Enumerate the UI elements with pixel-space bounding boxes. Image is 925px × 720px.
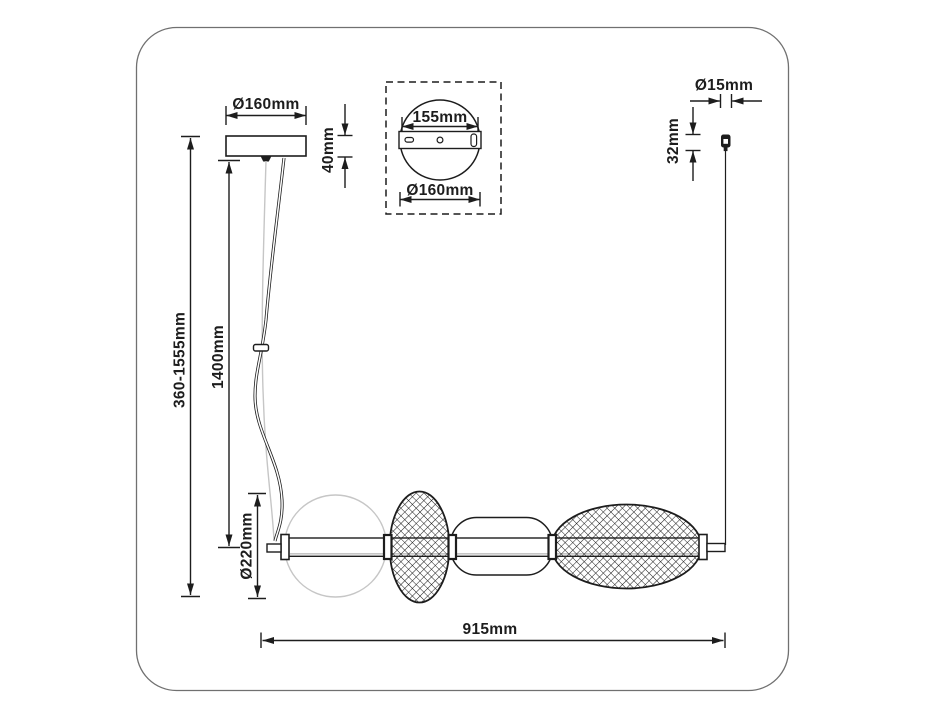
canopy-body xyxy=(226,136,306,156)
technical-drawing-pendant-lamp: Ø160mm 40mm 155mm Ø160mm Ø15mm 32mm 360-… xyxy=(0,0,925,720)
dim-label-fixture-length: 915mm xyxy=(463,621,518,638)
bar-collar xyxy=(549,535,557,559)
dim-grip-diameter xyxy=(690,94,762,108)
bar-end-cap-right xyxy=(699,535,707,560)
mesh-shade-large xyxy=(552,505,702,589)
dim-label-bracket-length: 155mm xyxy=(413,109,468,126)
bar-collar xyxy=(384,535,392,559)
dim-label-suspension-range: 360-1555mm xyxy=(172,312,189,408)
cord-exit-nub xyxy=(261,156,272,162)
fixture-bar-assembly xyxy=(267,492,725,603)
dim-label-grip-height: 32mm xyxy=(665,118,682,164)
dim-label-sphere-diameter: Ø220mm xyxy=(239,512,256,579)
bar-end-cap-left xyxy=(281,535,289,560)
bar-end-stub-right xyxy=(707,544,725,552)
dim-label-grip-diameter: Ø15mm xyxy=(695,77,753,94)
suspension-left xyxy=(254,158,285,541)
dim-label-canopy-diameter: Ø160mm xyxy=(232,96,299,113)
bar-collar xyxy=(449,535,457,559)
mesh-shade-small xyxy=(390,492,450,603)
bar-end-stub-left xyxy=(267,544,281,552)
cable-adjuster xyxy=(254,345,269,352)
dim-label-canopy-height: 40mm xyxy=(320,127,337,173)
cable-gripper-window xyxy=(723,139,728,144)
drawing-canvas: Ø160mm 40mm 155mm Ø160mm Ø15mm 32mm 360-… xyxy=(0,0,925,720)
cable-gripper-stem xyxy=(724,148,728,152)
mounting-bracket xyxy=(399,132,481,149)
canopy-side-view xyxy=(226,136,306,162)
suspension-right xyxy=(721,135,731,546)
dim-canopy-height xyxy=(338,104,353,188)
dim-label-cord-length: 1400mm xyxy=(210,325,227,389)
dim-grip-height xyxy=(686,107,701,181)
drawing-content: Ø160mm 40mm 155mm Ø160mm Ø15mm 32mm 360-… xyxy=(172,77,763,648)
dim-label-canopy-top-diameter: Ø160mm xyxy=(406,182,473,199)
